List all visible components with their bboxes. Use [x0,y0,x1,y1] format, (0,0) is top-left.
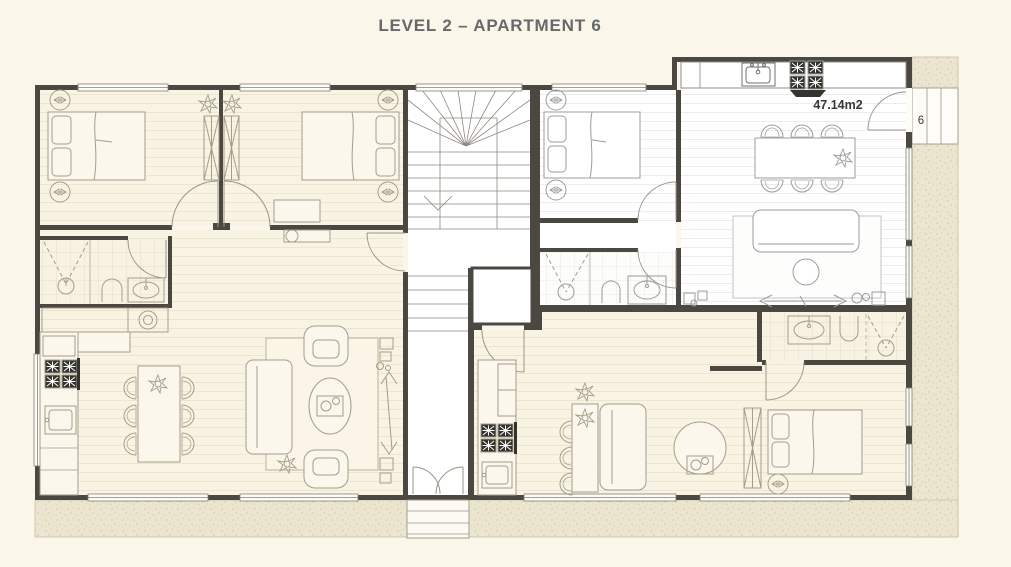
window [524,494,676,501]
window [906,388,912,426]
dresser [274,200,320,222]
bar-table [572,404,598,492]
stove [790,61,826,97]
sofa [600,404,646,490]
terrace-bottom-strip [35,500,958,537]
coffee-table [793,259,819,285]
round-table [674,422,726,474]
window [416,84,522,91]
bed [302,112,399,180]
window [240,84,330,91]
window [240,494,358,501]
coffee-table [309,378,351,434]
window [906,246,912,298]
window [78,84,168,91]
sofa [246,360,292,454]
entry-exterior-steps [407,500,469,538]
window [88,494,208,501]
window [906,148,912,240]
floor-plan: 47.14m2 6 [0,0,1011,567]
bed [544,112,640,178]
console-table [284,230,330,242]
window [552,84,646,91]
stair-shaft [472,268,532,324]
dining-table [138,366,180,462]
unit-number-label: 6 [918,115,924,127]
sofa [753,210,859,252]
armchair [304,450,348,488]
bed [48,112,145,180]
floor-plan-page: LEVEL 2 – APARTMENT 6 [0,0,1011,567]
armchair [304,326,348,366]
area-label: 47.14m2 [813,98,862,112]
window [700,494,850,501]
window [906,444,912,486]
unit-6-door-opening [906,88,912,132]
br-kitchen [478,360,517,495]
kitchen-cabinet [78,332,130,352]
